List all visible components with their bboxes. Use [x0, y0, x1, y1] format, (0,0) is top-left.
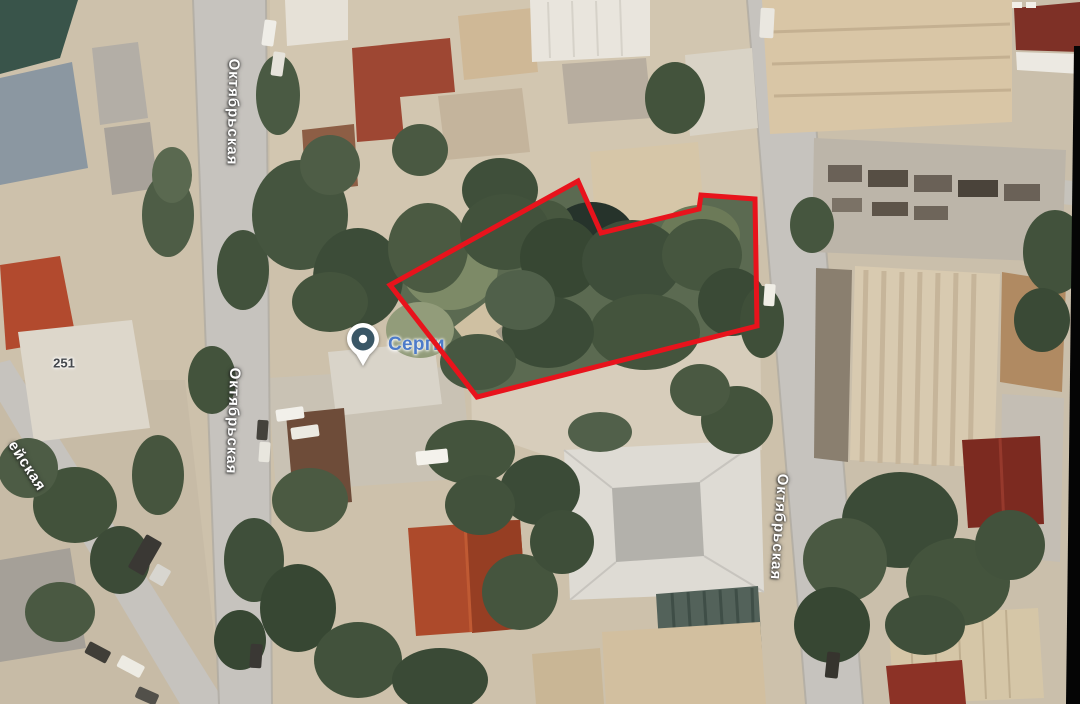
- house-251: [18, 320, 150, 442]
- map-pin-icon: [346, 322, 380, 368]
- warehouse-roof: [762, 0, 1012, 134]
- satellite-map[interactable]: Октябрьская Октябрьская Октябрьская ейск…: [0, 0, 1080, 704]
- house-number-label: 251: [53, 356, 75, 371]
- satellite-imagery: [0, 0, 1080, 704]
- road-label-oktyabrskaya-top: Октябрьская: [224, 58, 243, 165]
- poi-label[interactable]: Серги: [388, 334, 445, 356]
- striped-field: [850, 266, 1000, 468]
- poi-pin[interactable]: [346, 322, 380, 368]
